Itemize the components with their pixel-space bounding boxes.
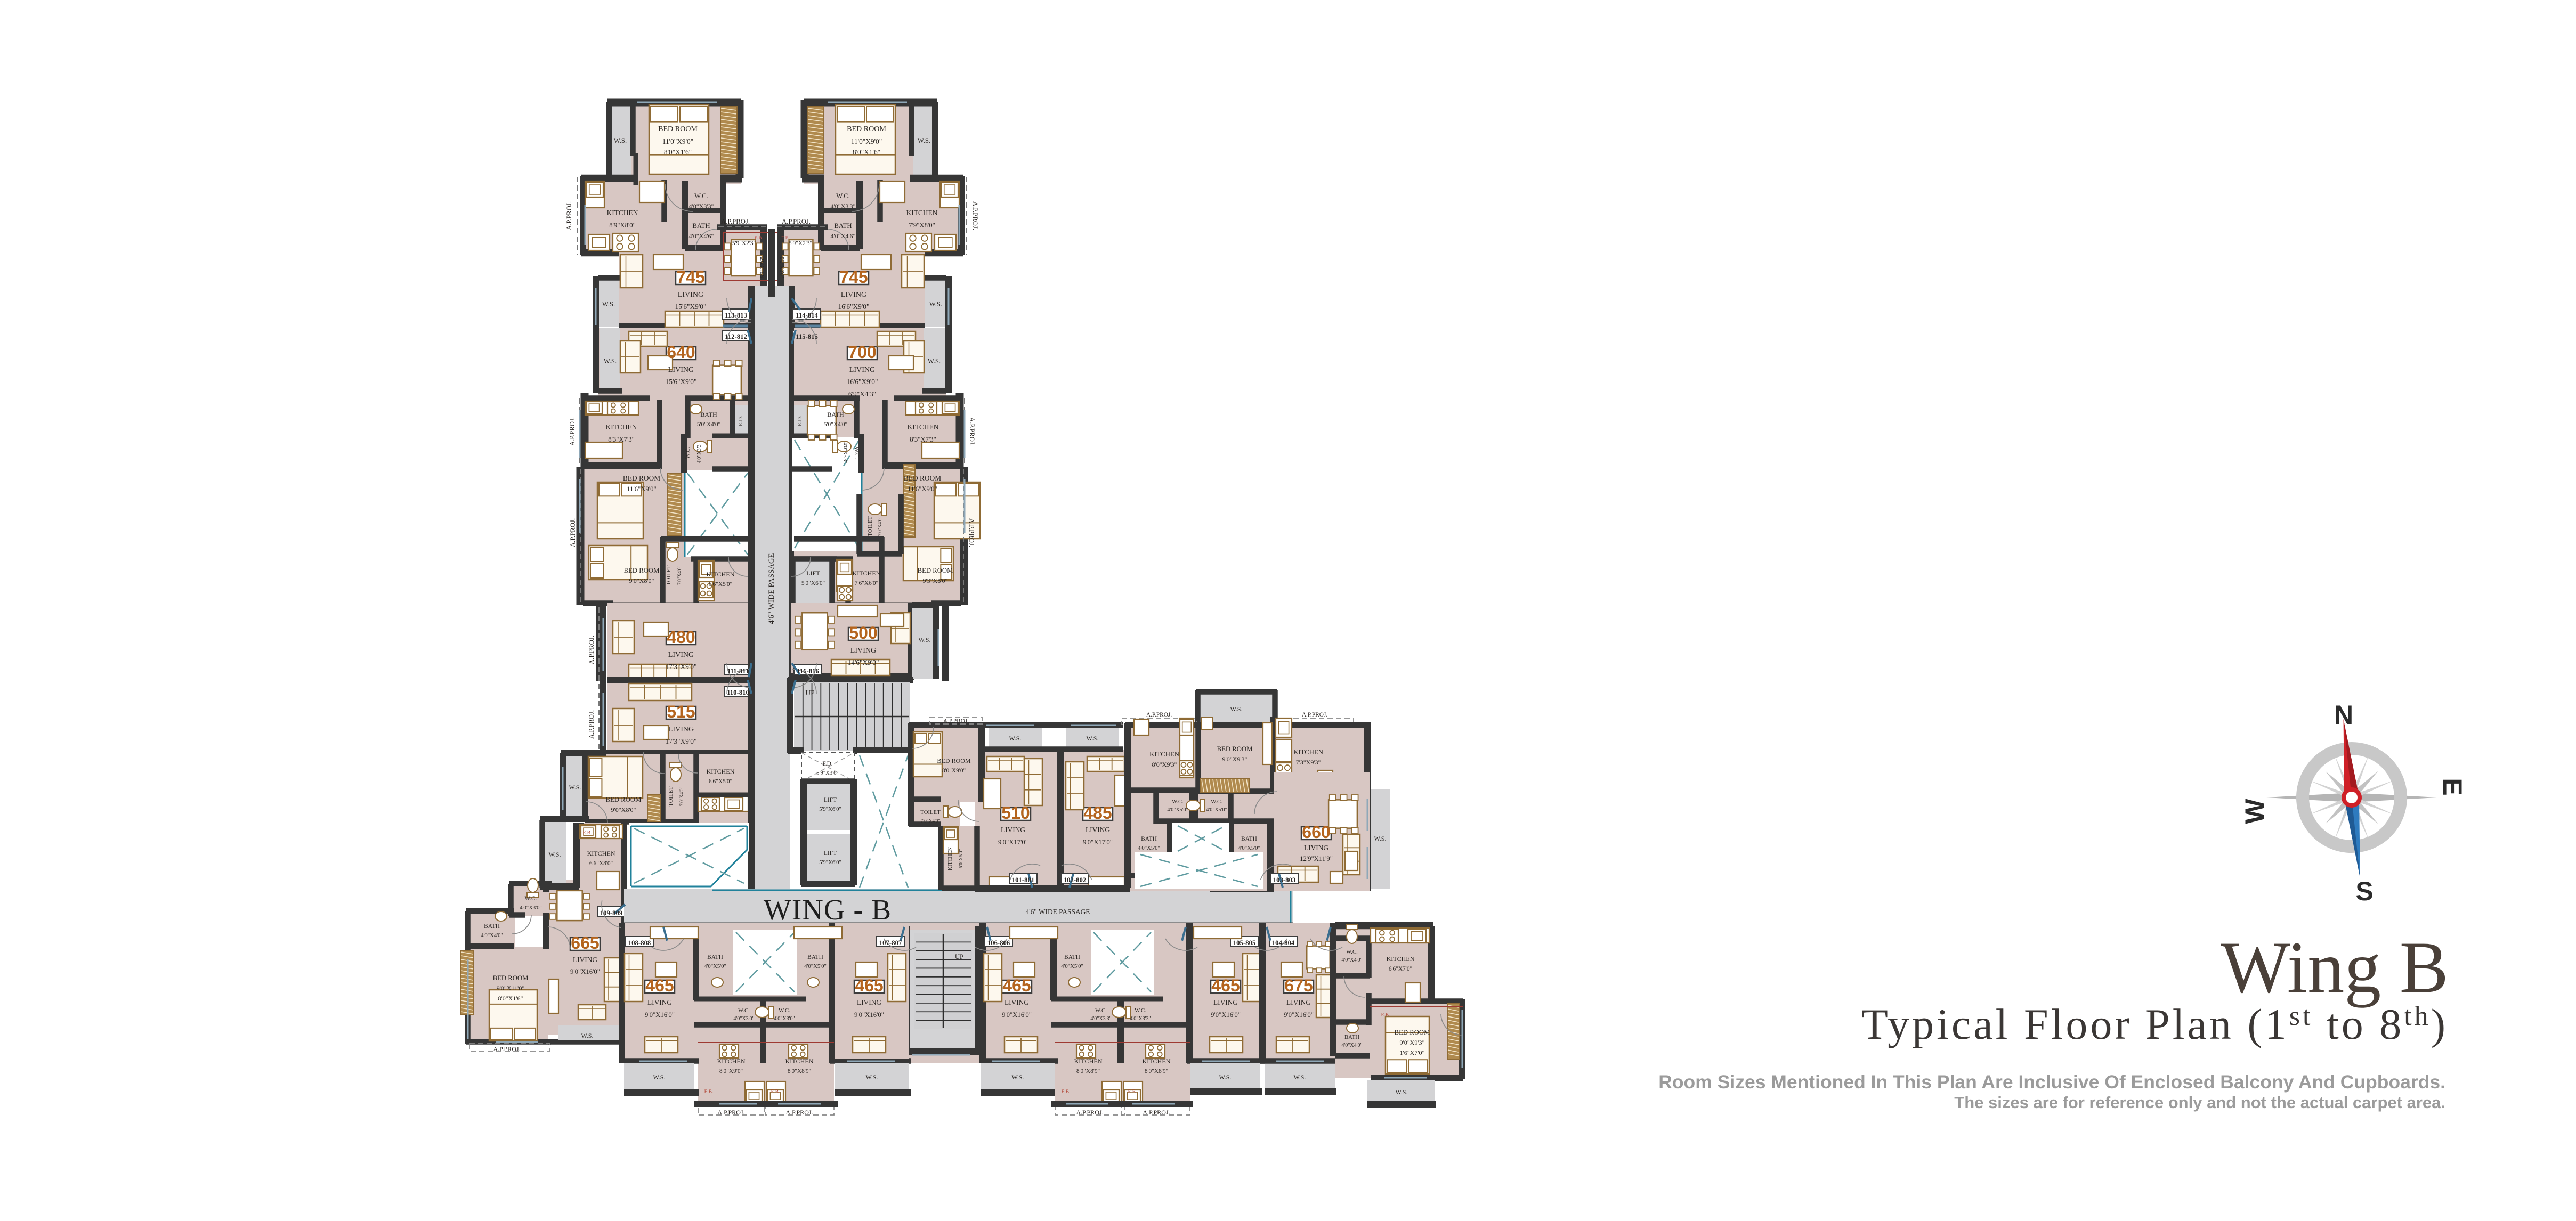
- svg-text:LIVING: LIVING: [1304, 844, 1328, 852]
- svg-text:Room Sizes Mentioned In This P: Room Sizes Mentioned In This Plan Are In…: [1658, 1071, 2445, 1093]
- svg-text:LIVING: LIVING: [1213, 998, 1238, 1006]
- svg-text:W.C.: W.C.: [1211, 799, 1222, 805]
- svg-text:KITCHEN: KITCHEN: [587, 850, 615, 857]
- svg-text:W.C.: W.C.: [738, 1007, 750, 1014]
- svg-text:N: N: [2334, 700, 2353, 730]
- svg-text:12'9"X11'9": 12'9"X11'9": [1300, 855, 1333, 862]
- svg-text:BED ROOM: BED ROOM: [937, 757, 971, 764]
- svg-text:E.B.: E.B.: [704, 1089, 714, 1095]
- svg-text:BED ROOM: BED ROOM: [918, 567, 953, 574]
- svg-text:A.P.PROJ.: A.P.PROJ.: [785, 1109, 813, 1116]
- svg-text:A.P.PROJ.: A.P.PROJ.: [565, 201, 573, 230]
- svg-text:KITCHEN: KITCHEN: [717, 1057, 746, 1065]
- svg-text:4'9"X4'0": 4'9"X4'0": [481, 932, 503, 939]
- svg-text:LIVING: LIVING: [647, 998, 672, 1006]
- svg-text:5'0"X6'0": 5'0"X6'0": [801, 580, 825, 587]
- svg-text:111-811: 111-811: [727, 668, 749, 675]
- svg-text:E: E: [2437, 778, 2467, 795]
- svg-text:E.B.: E.B.: [781, 235, 789, 240]
- svg-text:LIVING: LIVING: [849, 365, 875, 374]
- svg-text:4'0"X4'0": 4'0"X4'0": [1341, 1043, 1362, 1048]
- svg-text:660: 660: [1302, 823, 1330, 842]
- svg-text:LIVING: LIVING: [1086, 826, 1110, 834]
- svg-text:6'9"X4'3": 6'9"X4'3": [848, 390, 876, 398]
- svg-text:W.S.: W.S.: [866, 1073, 878, 1081]
- svg-text:W.S.: W.S.: [918, 137, 930, 144]
- svg-text:7'0"X4'0": 7'0"X4'0": [677, 566, 683, 585]
- svg-text:110-810: 110-810: [727, 689, 749, 696]
- svg-text:BATH: BATH: [1141, 836, 1157, 842]
- svg-text:4'0"X5'0": 4'0"X5'0": [1138, 845, 1160, 851]
- svg-text:W.S.: W.S.: [1294, 1073, 1306, 1081]
- svg-text:LIVING: LIVING: [1001, 826, 1025, 834]
- svg-text:114-814: 114-814: [796, 312, 818, 319]
- svg-text:106-806: 106-806: [987, 939, 1010, 947]
- svg-text:KITCHEN: KITCHEN: [1293, 748, 1323, 756]
- svg-text:A.P.PROJ.: A.P.PROJ.: [943, 718, 969, 725]
- svg-text:11'6"X9'0": 11'6"X9'0": [627, 485, 656, 493]
- svg-text:7'6"X6'0": 7'6"X6'0": [855, 580, 878, 587]
- svg-text:640: 640: [667, 343, 695, 362]
- svg-text:BED ROOM: BED ROOM: [493, 974, 529, 982]
- svg-text:9'0"X16'0": 9'0"X16'0": [1002, 1011, 1032, 1019]
- svg-text:BED ROOM: BED ROOM: [1395, 1029, 1430, 1036]
- svg-text:700: 700: [848, 343, 876, 362]
- svg-text:4'0"X3'3": 4'0"X3'3": [842, 442, 848, 463]
- svg-text:8'0"X9'0": 8'0"X9'0": [719, 1068, 743, 1075]
- svg-text:TOILET: TOILET: [920, 809, 941, 816]
- svg-text:4'0"X3'3": 4'0"X3'3": [1090, 1016, 1111, 1022]
- svg-text:W.S.: W.S.: [928, 357, 941, 365]
- svg-text:480: 480: [667, 628, 695, 647]
- svg-text:A.P.PROJ.: A.P.PROJ.: [971, 201, 979, 230]
- svg-text:TOILET: TOILET: [668, 786, 674, 807]
- svg-text:W.C.: W.C.: [779, 1007, 790, 1014]
- svg-text:5'0"X4'0": 5'0"X4'0": [824, 421, 847, 428]
- svg-text:LIVING: LIVING: [573, 956, 597, 964]
- svg-text:W.S.: W.S.: [1009, 735, 1022, 742]
- svg-text:LIVING: LIVING: [857, 998, 881, 1006]
- svg-text:BED ROOM: BED ROOM: [1217, 745, 1253, 753]
- svg-text:BATH: BATH: [1064, 954, 1080, 960]
- svg-text:9'0"X16'0": 9'0"X16'0": [1284, 1011, 1314, 1019]
- svg-text:F.D.: F.D.: [822, 761, 832, 767]
- svg-text:17'3"X9'0": 17'3"X9'0": [666, 737, 697, 745]
- svg-text:W.C.: W.C.: [1135, 1007, 1146, 1014]
- svg-text:5'9"X3'6": 5'9"X3'6": [816, 770, 839, 776]
- svg-text:LIVING: LIVING: [668, 365, 694, 374]
- svg-text:LIVING: LIVING: [668, 725, 694, 734]
- svg-text:9'0"X9'3": 9'0"X9'3": [1400, 1039, 1425, 1046]
- svg-text:E.B.: E.B.: [755, 235, 763, 240]
- svg-text:A.P.PROJ.: A.P.PROJ.: [1146, 712, 1172, 718]
- svg-text:8'0"X1'6": 8'0"X1'6": [853, 148, 880, 156]
- svg-text:A.P.PROJ.: A.P.PROJ.: [1076, 1109, 1103, 1116]
- svg-text:4'0"X5'0": 4'0"X5'0": [704, 963, 726, 970]
- svg-text:KITCHEN: KITCHEN: [1074, 1057, 1103, 1065]
- svg-text:E.D.: E.D.: [738, 416, 744, 426]
- svg-text:UP: UP: [805, 689, 814, 697]
- svg-text:9'0"X8'0": 9'0"X8'0": [629, 577, 654, 584]
- svg-text:8'0"X1'6": 8'0"X1'6": [498, 995, 523, 1002]
- svg-text:4'0"X5'0": 4'0"X5'0": [1061, 963, 1083, 970]
- svg-text:11'0"X9'0": 11'0"X9'0": [851, 137, 882, 145]
- svg-text:BATH: BATH: [692, 222, 710, 230]
- svg-text:9'0"X11'0": 9'0"X11'0": [497, 984, 525, 992]
- svg-text:W.S.: W.S.: [1012, 1073, 1024, 1081]
- svg-text:510: 510: [1001, 803, 1030, 823]
- svg-text:105-805: 105-805: [1233, 939, 1255, 947]
- svg-text:101-801: 101-801: [1012, 876, 1034, 884]
- svg-text:W.S.: W.S.: [604, 357, 617, 365]
- svg-text:W.C.: W.C.: [685, 446, 691, 459]
- svg-text:W.S.: W.S.: [602, 300, 615, 308]
- svg-text:A.P.PROJ.: A.P.PROJ.: [1143, 1109, 1170, 1116]
- svg-text:LIVING: LIVING: [841, 290, 866, 299]
- svg-text:KITCHEN: KITCHEN: [1143, 1057, 1171, 1065]
- svg-text:465: 465: [1002, 976, 1031, 995]
- svg-text:UP: UP: [955, 953, 963, 960]
- svg-text:8'0"X8'9": 8'0"X8'9": [1076, 1068, 1100, 1075]
- svg-text:4'0"X3'0": 4'0"X3'0": [733, 1016, 754, 1022]
- svg-text:9'0"X17'0": 9'0"X17'0": [1083, 839, 1113, 846]
- svg-text:665: 665: [571, 933, 599, 953]
- svg-text:465: 465: [645, 976, 674, 995]
- svg-text:KITCHEN: KITCHEN: [606, 423, 637, 431]
- svg-text:5'3"X2'6": 5'3"X2'6": [760, 257, 766, 278]
- svg-text:A.P.PROJ.: A.P.PROJ.: [493, 1045, 520, 1053]
- svg-text:KITCHEN: KITCHEN: [1149, 751, 1179, 758]
- svg-text:102-802: 102-802: [1064, 876, 1086, 884]
- svg-text:9'0"X17'0": 9'0"X17'0": [998, 839, 1028, 846]
- svg-text:LIVING: LIVING: [850, 646, 876, 655]
- svg-text:8'0"X1'6": 8'0"X1'6": [664, 148, 692, 156]
- svg-text:BATH: BATH: [1344, 1034, 1359, 1040]
- svg-text:9'0"X16'0": 9'0"X16'0": [1211, 1011, 1241, 1019]
- svg-text:5'0"X4'0": 5'0"X4'0": [697, 421, 720, 428]
- svg-text:8'3"X7'3": 8'3"X7'3": [608, 436, 635, 443]
- svg-text:4'0"X4'0": 4'0"X4'0": [1341, 957, 1362, 963]
- svg-text:LIVING: LIVING: [678, 290, 703, 299]
- svg-text:W.S.: W.S.: [919, 636, 931, 644]
- svg-text:KITCHEN: KITCHEN: [707, 768, 735, 775]
- svg-text:BATH: BATH: [700, 411, 717, 418]
- svg-text:BED ROOM: BED ROOM: [658, 125, 698, 133]
- svg-text:A.P.PROJ.: A.P.PROJ.: [968, 518, 975, 547]
- svg-text:5'9"X2'3": 5'9"X2'3": [789, 240, 812, 247]
- svg-text:4'0"X5'0": 4'0"X5'0": [1238, 845, 1260, 851]
- svg-text:W.S.: W.S.: [1087, 735, 1099, 742]
- svg-text:5'3"X2'6": 5'3"X2'6": [779, 257, 784, 278]
- svg-text:LIVING: LIVING: [1005, 998, 1029, 1006]
- svg-text:675: 675: [1284, 976, 1313, 995]
- svg-text:W.C.: W.C.: [525, 896, 537, 902]
- svg-text:4'0"X3'3": 4'0"X3'3": [689, 202, 714, 210]
- svg-text:KITCHEN: KITCHEN: [947, 846, 953, 870]
- svg-text:9'0"X16'0": 9'0"X16'0": [854, 1011, 884, 1019]
- svg-text:4'6" WIDE PASSAGE: 4'6" WIDE PASSAGE: [767, 553, 776, 624]
- svg-text:108-808: 108-808: [628, 939, 651, 947]
- svg-text:515: 515: [667, 702, 695, 721]
- svg-text:BED ROOM: BED ROOM: [904, 474, 941, 482]
- svg-text:KITCHEN: KITCHEN: [785, 1057, 814, 1065]
- svg-text:A.P.PROJ.: A.P.PROJ.: [569, 518, 577, 547]
- svg-text:Typical Floor Plan (1st to 8th: Typical Floor Plan (1st to 8th): [1861, 1000, 2448, 1048]
- svg-text:A.P.PROJ.: A.P.PROJ.: [569, 417, 576, 446]
- svg-text:KITCHEN: KITCHEN: [1387, 955, 1415, 963]
- svg-text:8'0"X9'0": 8'0"X9'0": [942, 768, 966, 774]
- svg-text:W.S.: W.S.: [1374, 835, 1387, 842]
- svg-text:115-815: 115-815: [796, 333, 818, 340]
- svg-text:6'0"X5'0": 6'0"X5'0": [959, 849, 964, 869]
- svg-text:KITCHEN: KITCHEN: [707, 571, 735, 578]
- svg-text:TOILET: TOILET: [867, 516, 873, 536]
- svg-text:7'9"X8'0": 7'9"X8'0": [909, 222, 935, 229]
- svg-text:LIFT: LIFT: [806, 569, 820, 577]
- svg-text:16'6"X9'0": 16'6"X9'0": [847, 378, 878, 386]
- svg-text:4'0"X3'0": 4'0"X3'0": [520, 905, 542, 911]
- svg-text:1'6"X7'0": 1'6"X7'0": [1400, 1049, 1425, 1056]
- svg-text:9'0"X16'0": 9'0"X16'0": [645, 1011, 675, 1019]
- svg-text:112-812: 112-812: [725, 333, 747, 340]
- svg-text:6'6"X5'0": 6'6"X5'0": [709, 581, 732, 588]
- svg-text:BED ROOM: BED ROOM: [847, 125, 886, 133]
- svg-text:W.C.: W.C.: [1346, 949, 1358, 955]
- svg-text:9'0"X8'0": 9'0"X8'0": [611, 806, 636, 813]
- svg-text:W.C.: W.C.: [853, 447, 860, 459]
- svg-text:A.P.PROJ.: A.P.PROJ.: [1302, 712, 1328, 718]
- svg-text:W.C.: W.C.: [1172, 799, 1184, 805]
- svg-text:KITCHEN: KITCHEN: [853, 569, 881, 577]
- svg-text:107-807: 107-807: [879, 939, 902, 947]
- svg-text:W.S.: W.S.: [549, 851, 561, 858]
- svg-text:A.P.PROJ.: A.P.PROJ.: [721, 218, 750, 225]
- svg-text:A.P.PROJ.: A.P.PROJ.: [968, 417, 976, 446]
- svg-text:W.C.: W.C.: [1095, 1007, 1107, 1014]
- svg-text:LIFT: LIFT: [824, 797, 837, 803]
- svg-text:Wing B: Wing B: [2221, 926, 2449, 1008]
- svg-text:9'0"X16'0": 9'0"X16'0": [570, 968, 600, 975]
- svg-text:KITCHEN: KITCHEN: [607, 209, 638, 217]
- svg-text:W.C.: W.C.: [694, 192, 708, 200]
- svg-text:4'0"X4'6": 4'0"X4'6": [831, 232, 856, 240]
- svg-text:11'0"X9'0": 11'0"X9'0": [662, 137, 693, 145]
- svg-text:W.S.: W.S.: [1230, 705, 1243, 713]
- svg-text:5'9"X2'3": 5'9"X2'3": [732, 240, 756, 247]
- svg-text:BATH: BATH: [1241, 836, 1257, 842]
- svg-text:103-803: 103-803: [1273, 876, 1295, 884]
- svg-text:The sizes are for reference on: The sizes are for reference only and not…: [1954, 1093, 2445, 1112]
- svg-text:A.P.PROJ.: A.P.PROJ.: [717, 1109, 744, 1116]
- svg-text:7'0"X4'0": 7'0"X4'0": [921, 819, 941, 824]
- svg-text:A.P.PROJ.: A.P.PROJ.: [782, 218, 811, 225]
- svg-text:7'0"X4'0": 7'0"X4'0": [679, 787, 685, 807]
- svg-text:5'9"X6'0": 5'9"X6'0": [819, 806, 841, 812]
- svg-text:4'6" WIDE PASSAGE: 4'6" WIDE PASSAGE: [1026, 908, 1090, 916]
- svg-text:4'0"X3'3": 4'0"X3'3": [1130, 1016, 1151, 1022]
- svg-text:745: 745: [676, 267, 704, 287]
- svg-text:7'0"X4'0": 7'0"X4'0": [878, 517, 883, 536]
- svg-text:W.S.: W.S.: [1396, 1088, 1408, 1096]
- svg-text:BATH: BATH: [827, 411, 844, 418]
- svg-text:LIVING: LIVING: [1286, 998, 1311, 1006]
- svg-text:E.B.: E.B.: [771, 1089, 780, 1095]
- svg-text:4'0"X4'6": 4'0"X4'6": [689, 232, 714, 240]
- svg-text:KITCHEN: KITCHEN: [906, 209, 938, 217]
- svg-text:6'6"X7'0": 6'6"X7'0": [1389, 966, 1412, 972]
- svg-text:WING - B: WING - B: [764, 893, 892, 926]
- svg-text:W.S.: W.S.: [1219, 1073, 1232, 1081]
- svg-text:9'0"X9'3": 9'0"X9'3": [1222, 755, 1248, 763]
- svg-text:6'6"X8'0": 6'6"X8'0": [589, 860, 613, 867]
- svg-text:104-804: 104-804: [1272, 939, 1295, 947]
- svg-text:W: W: [2240, 799, 2270, 824]
- svg-text:KITCHEN: KITCHEN: [908, 423, 939, 431]
- svg-text:4'0"X3'3": 4'0"X3'3": [831, 202, 856, 210]
- svg-text:116-816: 116-816: [797, 668, 819, 675]
- svg-text:A.P.PROJ.: A.P.PROJ.: [588, 710, 595, 739]
- svg-text:BATH: BATH: [484, 923, 500, 930]
- svg-text:LIFT: LIFT: [824, 850, 837, 857]
- svg-text:BED ROOM: BED ROOM: [623, 474, 660, 482]
- svg-text:745: 745: [839, 267, 868, 287]
- svg-text:500: 500: [849, 623, 877, 642]
- svg-text:S: S: [2355, 876, 2373, 906]
- svg-text:W.S.: W.S.: [653, 1073, 666, 1081]
- svg-text:LIVING: LIVING: [668, 650, 694, 659]
- svg-text:W.C.: W.C.: [836, 192, 850, 200]
- svg-text:A.P.PROJ.: A.P.PROJ.: [588, 636, 595, 664]
- svg-text:BED ROOM: BED ROOM: [624, 567, 660, 574]
- svg-text:BATH: BATH: [834, 222, 852, 230]
- svg-text:E.B.: E.B.: [1128, 1089, 1137, 1095]
- svg-text:113-813: 113-813: [725, 312, 747, 319]
- svg-text:W.S.: W.S.: [581, 1032, 594, 1039]
- svg-text:14'6"X9'0": 14'6"X9'0": [848, 658, 879, 666]
- svg-text:8'0"X8'9": 8'0"X8'9": [1145, 1068, 1168, 1075]
- svg-text:109-809: 109-809: [600, 909, 622, 917]
- svg-text:4'0"X3'3": 4'0"X3'3": [696, 442, 702, 463]
- svg-text:15'6"X9'0": 15'6"X9'0": [666, 378, 697, 386]
- svg-text:16'6"X9'0": 16'6"X9'0": [838, 303, 870, 311]
- svg-text:W.S.: W.S.: [929, 300, 942, 308]
- svg-text:11'6"X9'0": 11'6"X9'0": [908, 485, 937, 493]
- svg-text:17'3"X9'0": 17'3"X9'0": [666, 663, 697, 671]
- svg-text:15'6"X9'0": 15'6"X9'0": [675, 303, 707, 311]
- svg-text:465: 465: [855, 976, 883, 995]
- svg-text:E.B.: E.B.: [583, 831, 592, 836]
- svg-text:4'0"X5'0": 4'0"X5'0": [804, 963, 827, 970]
- svg-text:4'0"X3'0": 4'0"X3'0": [774, 1016, 795, 1022]
- svg-text:465: 465: [1211, 976, 1240, 995]
- svg-text:9'3"X8'0": 9'3"X8'0": [923, 577, 948, 584]
- svg-text:BATH: BATH: [707, 954, 723, 960]
- svg-text:4'0"X5'0": 4'0"X5'0": [1167, 807, 1188, 813]
- svg-text:E.B.: E.B.: [1062, 1089, 1071, 1095]
- svg-text:W.S.: W.S.: [569, 784, 581, 791]
- svg-text:8'0"X9'3": 8'0"X9'3": [1152, 761, 1177, 768]
- svg-text:4'0"X5'0": 4'0"X5'0": [1206, 807, 1227, 813]
- svg-text:W.S.: W.S.: [614, 137, 627, 144]
- svg-text:TOILET: TOILET: [666, 565, 672, 585]
- svg-text:E.D.: E.D.: [797, 416, 803, 426]
- svg-text:BED ROOM: BED ROOM: [606, 796, 642, 803]
- svg-text:5'9"X6'0": 5'9"X6'0": [819, 859, 841, 866]
- svg-text:6'6"X5'0": 6'6"X5'0": [709, 778, 732, 785]
- svg-text:8'3"X7'3": 8'3"X7'3": [910, 436, 936, 443]
- svg-text:E.B.: E.B.: [1381, 1013, 1390, 1018]
- svg-text:BATH: BATH: [807, 954, 823, 960]
- svg-text:485: 485: [1083, 803, 1112, 823]
- svg-text:8'0"X8'9": 8'0"X8'9": [788, 1068, 811, 1075]
- svg-text:8'9"X8'0": 8'9"X8'0": [609, 222, 636, 229]
- svg-text:7'3"X9'3": 7'3"X9'3": [1296, 759, 1321, 766]
